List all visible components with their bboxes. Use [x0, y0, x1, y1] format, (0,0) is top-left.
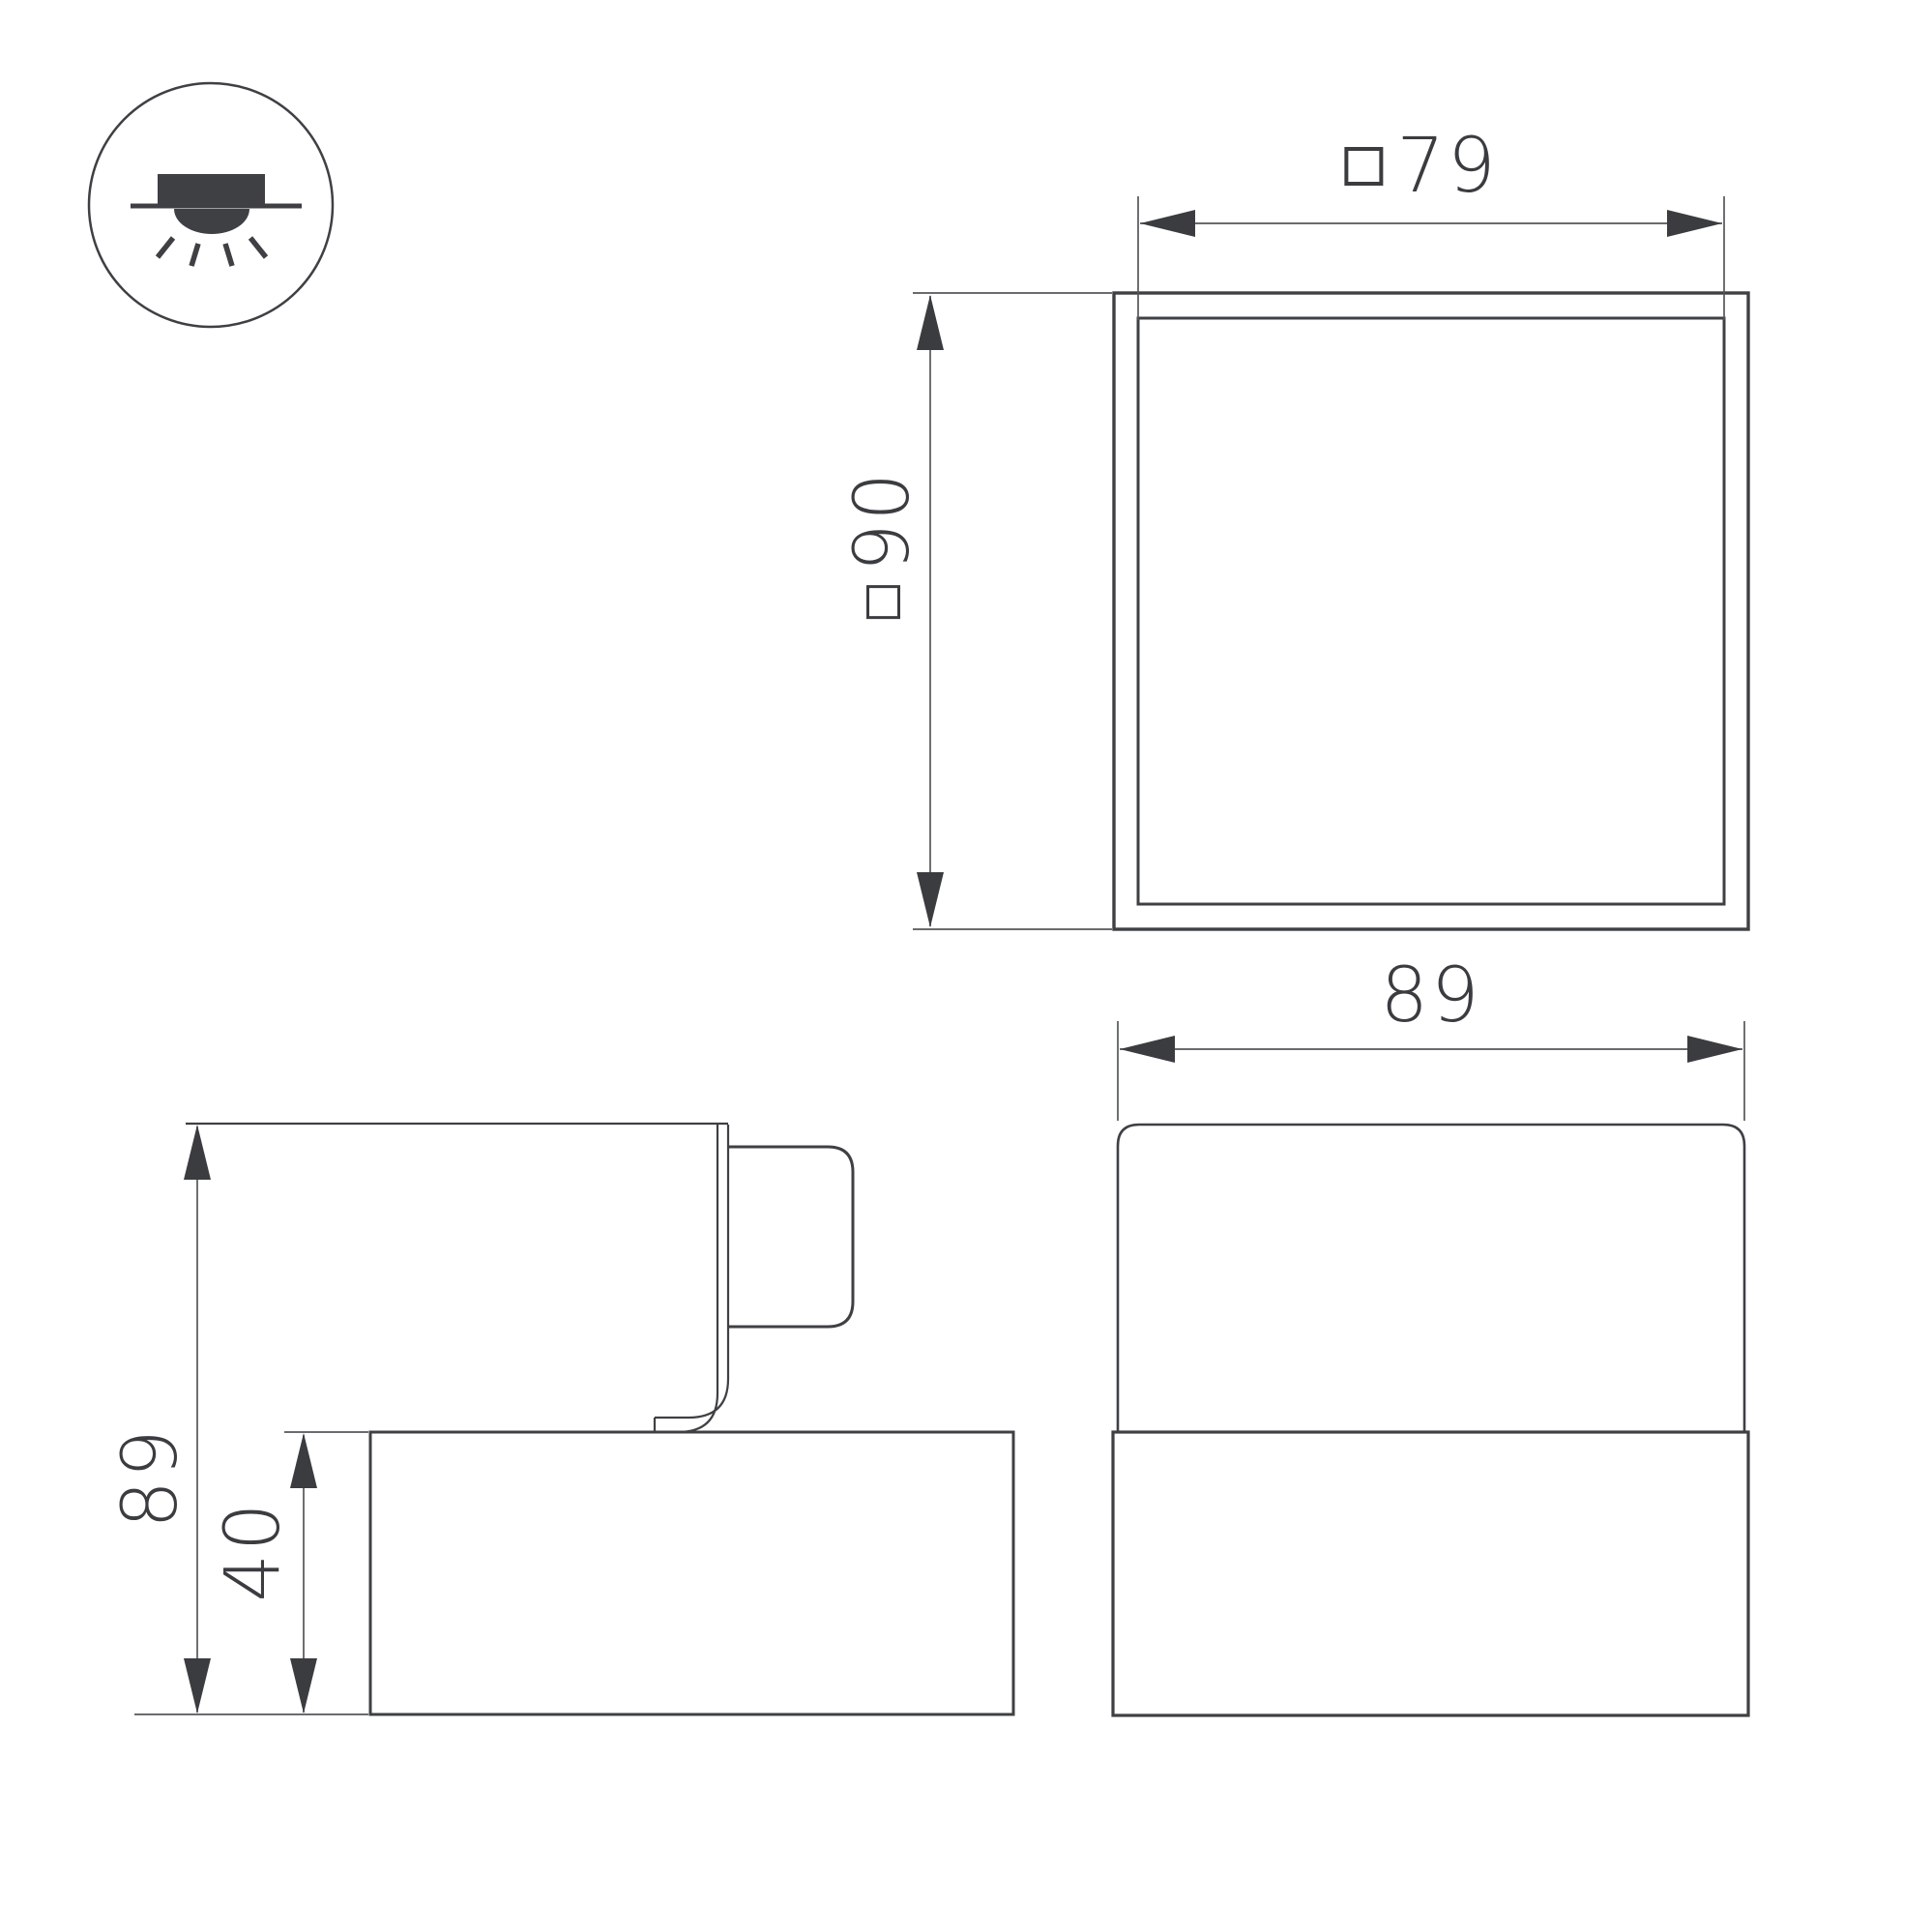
dim-top-inner-label: 79: [1344, 129, 1498, 204]
fixture-body: [158, 174, 265, 204]
technical-drawing: 79 90 89 89 40: [0, 0, 1932, 1932]
top-view-inner-square: [1138, 318, 1724, 904]
dim-top-outer-label: 90: [845, 470, 921, 619]
light-rays-icon: [158, 238, 266, 266]
dim-top-outer-value: 90: [845, 470, 921, 571]
side-view: [134, 1124, 1013, 1714]
top-view: [913, 196, 1748, 929]
top-view-outer-dimension: [913, 293, 1112, 929]
dim-side-base-height-value: 40: [216, 1500, 291, 1601]
dim-top-inner-value: 79: [1396, 129, 1498, 204]
side-view-height-dimension: [184, 1125, 211, 1713]
top-view-inner-dimension: [1138, 196, 1724, 320]
dim-front-width-value: 89: [1380, 958, 1481, 1034]
front-view: [1113, 1021, 1748, 1715]
dim-side-base-height-label: 40: [216, 1500, 291, 1601]
square-section-symbol: [1344, 147, 1383, 186]
square-section-symbol: [866, 585, 900, 619]
front-view-head: [1118, 1125, 1744, 1432]
drawing-linework: [0, 0, 1932, 1932]
mount-type-icon: [89, 83, 333, 327]
mounting-clip: [728, 1147, 853, 1327]
dim-side-height-value: 89: [113, 1426, 189, 1528]
dim-front-width-label: 89: [1380, 958, 1481, 1034]
top-view-outer-square: [1114, 293, 1748, 929]
side-view-base: [370, 1432, 1013, 1714]
light-dome: [174, 209, 249, 234]
front-view-base: [1113, 1432, 1748, 1715]
dim-side-height-label: 89: [113, 1426, 189, 1528]
